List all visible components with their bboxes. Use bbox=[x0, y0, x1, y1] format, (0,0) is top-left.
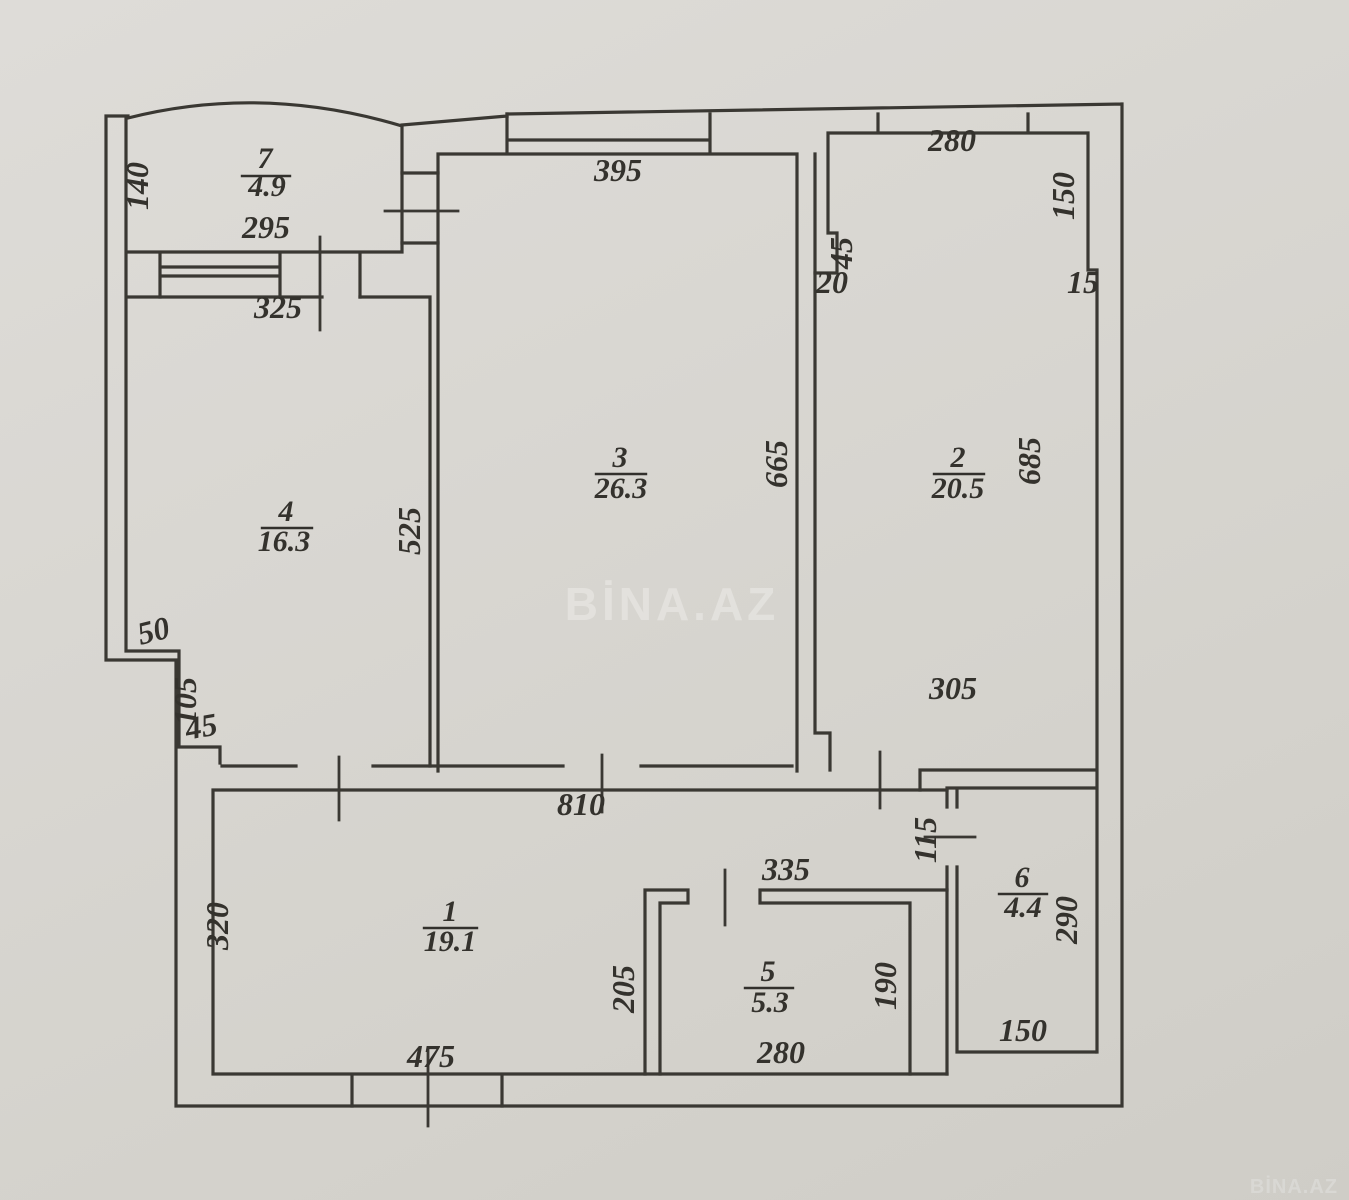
room-6-area: 4.4 bbox=[1003, 891, 1042, 924]
dim-room5-right: 190 bbox=[867, 962, 903, 1010]
room-1-number: 1 bbox=[443, 895, 458, 928]
dim-room3-window: 395 bbox=[593, 152, 642, 188]
dim-room2-width: 305 bbox=[928, 670, 977, 706]
dim-room5-bottom: 280 bbox=[756, 1034, 805, 1070]
dim-room6-height: 290 bbox=[1048, 896, 1084, 945]
room-6-label: 6 4.4 bbox=[1003, 861, 1042, 924]
dim-hall-width: 810 bbox=[557, 786, 605, 822]
dim-balcony-width: 295 bbox=[241, 209, 290, 245]
dim-room5-top: 335 bbox=[761, 851, 810, 887]
dim-room2-window: 280 bbox=[927, 122, 976, 158]
dim-hall-bottom: 475 bbox=[406, 1038, 455, 1074]
room-4-number: 4 bbox=[278, 495, 294, 528]
room-2-number: 2 bbox=[950, 441, 966, 474]
dim-room4-height: 525 bbox=[391, 507, 427, 555]
room-7-label: 7 4.9 bbox=[247, 142, 286, 203]
room-3-number: 3 bbox=[612, 441, 628, 474]
dim-room2-right-upper: 150 bbox=[1045, 172, 1081, 220]
room-5-number: 5 bbox=[761, 955, 776, 988]
watermark-corner: BİNA.AZ bbox=[1250, 1175, 1338, 1198]
floor-plan-photo: 7 4.9 4 16.3 3 26.3 2 20.5 1 19.1 5 5.3 bbox=[0, 0, 1349, 1200]
room-1-area: 19.1 bbox=[424, 925, 477, 958]
room-5-area: 5.3 bbox=[751, 986, 789, 1019]
dim-hall-height: 320 bbox=[199, 902, 235, 951]
dim-left-step-inset: 45 bbox=[181, 706, 220, 747]
room-7-area: 4.9 bbox=[247, 170, 286, 203]
dim-room6-door: 115 bbox=[907, 817, 943, 863]
dim-balcony-side: 140 bbox=[119, 162, 155, 210]
room-4-area: 16.3 bbox=[258, 525, 311, 558]
room-5-label: 5 5.3 bbox=[751, 955, 789, 1019]
room-1-label: 1 19.1 bbox=[424, 895, 477, 958]
room-3-label: 3 26.3 bbox=[594, 441, 648, 505]
dim-room3-height: 665 bbox=[758, 440, 794, 488]
room-3-area: 26.3 bbox=[594, 472, 648, 505]
dim-room6-bottom: 150 bbox=[999, 1012, 1047, 1048]
dim-room2-right-step: 15 bbox=[1067, 264, 1099, 300]
dim-room2-height: 685 bbox=[1011, 437, 1047, 485]
room-6-number: 6 bbox=[1015, 861, 1030, 894]
dim-room4-top-width: 325 bbox=[253, 289, 302, 325]
dim-left-step-width: 50 bbox=[133, 609, 173, 652]
floor-plan-svg: 7 4.9 4 16.3 3 26.3 2 20.5 1 19.1 5 5.3 bbox=[0, 0, 1349, 1200]
dim-room2-niche-width: 20 bbox=[815, 264, 848, 300]
room-2-label: 2 20.5 bbox=[931, 441, 985, 505]
watermark-center: BİNA.AZ bbox=[565, 578, 780, 630]
room-2-area: 20.5 bbox=[931, 472, 985, 505]
room-4-label: 4 16.3 bbox=[258, 495, 311, 558]
dim-room5-left: 205 bbox=[605, 965, 641, 1014]
